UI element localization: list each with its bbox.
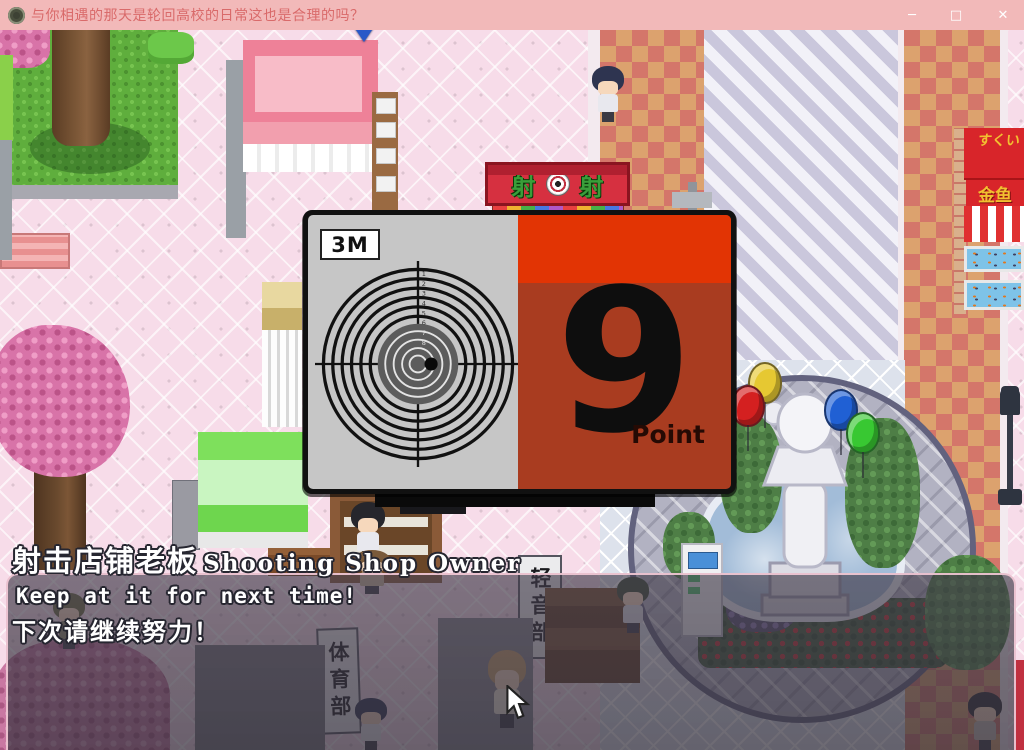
svg-text:7: 7 <box>422 329 426 337</box>
striped-stall <box>262 282 302 427</box>
lamp-post <box>994 385 1024 509</box>
close-button[interactable]: ✕ <box>983 0 1023 30</box>
fish-tank <box>964 246 1024 272</box>
window-title: 与你相遇的那天是轮回高校的日常这也是合理的吗？ <box>31 5 365 25</box>
tree-trunk <box>52 30 110 146</box>
distance-label: 3M <box>320 229 380 260</box>
speaker-name-en: Shooting Shop Owner <box>203 550 521 577</box>
balloon-red <box>731 385 765 427</box>
grass-platform-edge <box>0 185 178 199</box>
goldfish-stall: すくい 金鱼 <box>954 128 1024 314</box>
maximize-button[interactable]: □ <box>936 0 976 30</box>
game-scene: 射 射 すくい 金鱼 轻音部 体育部 <box>0 30 1024 750</box>
svg-text:5: 5 <box>422 309 426 317</box>
svg-text:6: 6 <box>422 319 426 327</box>
bullet-hole <box>425 357 438 370</box>
goldfish-awning: すくい <box>964 128 1024 180</box>
leaf-strip <box>0 55 13 141</box>
svg-text:1: 1 <box>422 270 426 278</box>
balloon-green <box>846 412 880 454</box>
mouse-cursor <box>505 685 531 725</box>
dialogue-line-cn: 下次请继续努力！ <box>12 612 220 647</box>
title-bar: 与你相遇的那天是轮回高校的日常这也是合理的吗？ ─ □ ✕ <box>0 0 1024 30</box>
app-icon <box>8 7 25 24</box>
map-marker-icon <box>352 30 376 42</box>
shoot-sign-char: 射 <box>580 167 604 202</box>
dialogue-line-en: Keep at it for next time! <box>16 584 357 608</box>
score-panel: 12345678 3M 9 Point <box>303 210 736 494</box>
green-stall <box>198 432 308 548</box>
hedge <box>148 32 194 64</box>
game-window: 与你相遇的那天是轮回高校的日常这也是合理的吗？ ─ □ ✕ <box>0 0 1024 750</box>
target-icon <box>546 172 570 196</box>
svg-text:2: 2 <box>422 280 426 288</box>
goldfish-awning-text: すくい <box>977 130 1022 150</box>
minimize-button[interactable]: ─ <box>892 0 932 30</box>
goods-shelf <box>372 92 398 210</box>
goldfish-sign: 金鱼 <box>966 180 1024 206</box>
stall-post <box>0 140 12 260</box>
npc-student-navy <box>591 66 625 122</box>
fish-tank <box>964 280 1024 310</box>
svg-text:8: 8 <box>422 339 426 347</box>
speaker-name-cn: 射击店铺老板 <box>12 544 198 578</box>
target-rings: 12345678 <box>315 261 518 467</box>
striped-awning <box>964 206 1024 242</box>
svg-text:3: 3 <box>422 290 426 298</box>
score-display: 9 Point <box>518 215 731 489</box>
speaker-name: 射击店铺老板 Shooting Shop Owner <box>12 538 521 580</box>
score-unit: Point <box>631 420 705 449</box>
pink-stall <box>243 40 378 172</box>
target-board: 12345678 3M <box>308 215 518 489</box>
shooting-shop-sign: 射 射 <box>485 162 630 206</box>
svg-text:4: 4 <box>422 299 426 307</box>
shoot-sign-char: 射 <box>512 167 536 202</box>
